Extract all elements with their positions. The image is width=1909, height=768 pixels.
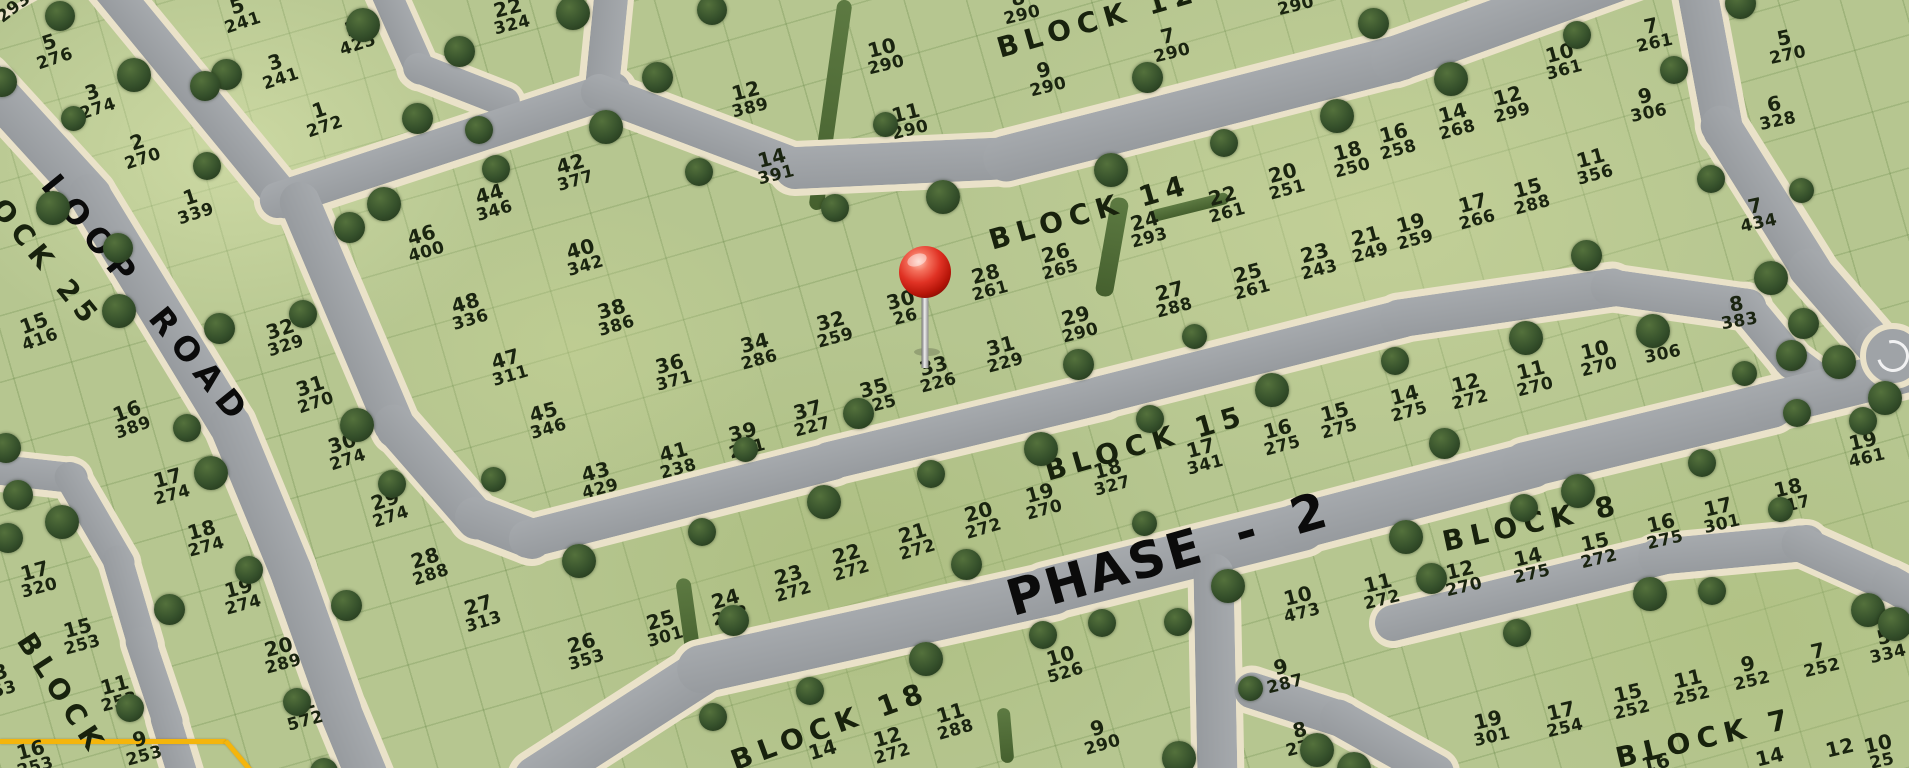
lot-label: 17274: [148, 464, 193, 508]
lot-number: 14: [1754, 744, 1786, 768]
lot-label: 41238: [654, 438, 699, 482]
lot-label: 12272: [1446, 369, 1490, 412]
lot-label: 7290: [1148, 22, 1192, 65]
tree-icon: [821, 194, 849, 222]
tree-icon: [173, 414, 201, 442]
lot-label: 12299: [1488, 82, 1533, 126]
tree-icon: [1636, 314, 1670, 348]
tree-icon: [1788, 308, 1819, 339]
location-pin[interactable]: [880, 238, 970, 368]
tree-icon: [1768, 497, 1793, 522]
lot-label: 15288: [1508, 174, 1553, 218]
tree-icon: [926, 180, 960, 214]
lot-label: 1025: [1862, 732, 1898, 768]
tree-icon: [1132, 62, 1163, 93]
lot-label: 31229: [981, 332, 1026, 376]
lot-label: 11252: [1668, 666, 1712, 709]
lot-label: 26265: [1036, 239, 1081, 283]
tree-icon: [1571, 240, 1602, 271]
tree-icon: [61, 106, 86, 131]
lot-label: 1272: [299, 96, 345, 141]
lot-label: 12: [1824, 735, 1856, 760]
plat-map: LOOP ROADPHASE - 22935276327422701339524…: [0, 0, 1909, 768]
lot-label: 12272: [867, 723, 912, 767]
tree-icon: [481, 467, 506, 492]
tree-icon: [103, 233, 133, 263]
tree-icon: [0, 523, 23, 553]
tree-icon: [1162, 741, 1196, 768]
tree-icon: [796, 677, 824, 705]
tree-icon: [807, 485, 841, 519]
lot-label: 22261: [1203, 182, 1248, 226]
tree-icon: [331, 590, 362, 621]
tree-icon: [1320, 99, 1354, 133]
lot-label: 14268: [1433, 99, 1478, 143]
tree-icon: [1164, 608, 1192, 636]
lot-label: 27313: [458, 591, 504, 635]
lot-area-value: 293: [0, 0, 34, 26]
lot-label: 9290: [1024, 56, 1068, 99]
lot-label: 15416: [14, 308, 61, 354]
lot-label: 5276: [29, 28, 75, 73]
tree-icon: [1509, 321, 1543, 355]
tree-icon: [1429, 428, 1460, 459]
tree-icon: [45, 505, 79, 539]
road-segment: [1076, 295, 1426, 418]
lot-label: 19270: [1020, 479, 1065, 523]
lot-label: 293: [0, 0, 34, 26]
lot-label: 20272: [958, 498, 1003, 542]
lot-label: 36371: [650, 350, 695, 394]
lot-label: 28288: [405, 544, 451, 589]
tree-icon: [235, 556, 263, 584]
tree-icon: [589, 110, 623, 144]
lot-label: 5270: [1764, 25, 1807, 67]
tree-icon: [1563, 21, 1591, 49]
lot-label: 14391: [752, 144, 796, 187]
lot-label: 19301: [1468, 707, 1512, 750]
lot-label: 9252: [1728, 651, 1772, 694]
tree-icon: [36, 191, 70, 225]
lot-label: 27288: [1150, 277, 1195, 321]
tree-icon: [1503, 619, 1531, 647]
tree-icon: [1210, 129, 1238, 157]
lot-label: 40342: [560, 235, 605, 279]
tree-icon: [688, 518, 716, 546]
tree-icon: [102, 294, 136, 328]
tree-icon: [194, 456, 228, 490]
tree-icon: [1688, 449, 1716, 477]
lot-label: 17254: [1541, 698, 1585, 741]
tree-icon: [1789, 178, 1814, 203]
lot-label: 22324: [488, 0, 532, 38]
lot-area-value: 25: [1866, 750, 1898, 768]
lot-label: 15252: [1608, 680, 1652, 723]
lot-label: 6328: [1754, 91, 1797, 133]
lot-area-value: 253: [0, 679, 18, 704]
tree-icon: [1132, 511, 1157, 536]
lot-area-value: 306: [1629, 102, 1669, 125]
lot-label: 14275: [1385, 381, 1430, 425]
lot-label: 8383: [1717, 291, 1760, 332]
lot-area-value: 290: [1276, 0, 1316, 18]
road-segment: [1313, 692, 1460, 768]
lot-label: 29290: [1056, 302, 1101, 346]
lot-label: 13253: [0, 660, 18, 704]
lot-label: 23243: [1295, 239, 1340, 283]
tree-icon: [340, 408, 374, 442]
lot-label: 21249: [1346, 222, 1391, 266]
tree-icon: [1088, 609, 1116, 637]
lot-label: 22272: [826, 540, 871, 584]
lot-label: 44346: [469, 180, 514, 224]
lot-label: 9290: [1077, 714, 1122, 758]
tree-icon: [1182, 324, 1207, 349]
lot-label: 17320: [15, 557, 60, 601]
pin-graphic: [880, 238, 970, 368]
lot-label: 11270: [1511, 356, 1555, 399]
tree-icon: [1358, 8, 1389, 39]
lot-label: 10290: [862, 34, 906, 77]
lot-label: 17266: [1453, 189, 1498, 233]
lot-label: 15275: [1315, 398, 1360, 442]
lot-label: 9306: [1625, 83, 1668, 125]
lot-label: 16275: [1258, 415, 1303, 459]
lot-label: 17301: [1698, 494, 1742, 537]
lot-label: 15253: [58, 614, 103, 658]
tree-icon: [1849, 407, 1877, 435]
lot-label: 20251: [1263, 159, 1308, 203]
lot-label: 48336: [445, 289, 490, 333]
tree-icon: [1238, 676, 1263, 701]
lot-label: 42377: [550, 150, 595, 194]
lot-label: 37227: [788, 396, 833, 440]
lot-label: 43429: [576, 458, 621, 502]
tree-icon: [1094, 153, 1128, 187]
tree-icon: [283, 688, 311, 716]
tree-icon: [1776, 340, 1807, 371]
roundabout-ring: [1871, 334, 1909, 378]
tree-icon: [1698, 577, 1726, 605]
tree-icon: [718, 605, 749, 636]
lot-label: 16389: [107, 396, 154, 442]
lot-label: 46400: [401, 221, 446, 265]
lot-label: 23272: [768, 561, 813, 605]
tree-icon: [444, 36, 475, 67]
lot-label: 10473: [1278, 582, 1322, 625]
lot-label: 45346: [523, 398, 568, 442]
lot-label: 11356: [1571, 144, 1616, 188]
lot-label: 28261: [966, 260, 1011, 304]
phase-boundary-line: [224, 739, 256, 768]
tree-icon: [3, 480, 33, 510]
tree-icon: [733, 437, 758, 462]
lot-label: 12389: [726, 77, 770, 120]
lot-label: 38386: [591, 295, 636, 339]
lot-label: 47311: [485, 345, 530, 389]
tree-icon: [1725, 0, 1756, 19]
lot-label: 9287: [1261, 653, 1305, 696]
tree-icon: [116, 694, 144, 722]
tree-icon: [1697, 165, 1725, 193]
tree-icon: [1255, 373, 1289, 407]
lot-area-value: 270: [1768, 44, 1808, 67]
tree-icon: [193, 152, 221, 180]
tree-icon: [699, 703, 727, 731]
tree-icon: [1389, 520, 1423, 554]
tree-icon: [289, 300, 317, 328]
tree-icon: [482, 155, 510, 183]
lot-label: 16275: [1641, 510, 1685, 553]
lot-label: 34286: [735, 329, 780, 373]
tree-icon: [117, 58, 151, 92]
tree-icon: [1660, 56, 1688, 84]
lot-label: 16258: [1374, 119, 1419, 163]
tree-icon: [334, 212, 365, 243]
lot-label: 32259: [811, 307, 856, 351]
lot-label: 18274: [182, 516, 227, 560]
lot-label: 26353: [561, 629, 606, 673]
tree-icon: [917, 460, 945, 488]
tree-icon: [190, 71, 220, 101]
tree-icon: [562, 544, 596, 578]
hedge-strip: [996, 707, 1014, 763]
lot-label: 7261: [1631, 13, 1674, 55]
lot-label: 11288: [930, 699, 975, 743]
tree-icon: [1211, 569, 1245, 603]
tree-icon: [1381, 347, 1409, 375]
tree-icon: [697, 0, 727, 25]
tree-icon: [204, 313, 235, 344]
tree-icon: [1754, 261, 1788, 295]
lot-label: 31270: [290, 372, 336, 417]
lot-label: 14: [1754, 744, 1786, 768]
lot-label: 19259: [1391, 209, 1436, 253]
tree-icon: [1434, 62, 1468, 96]
lot-label: 11272: [1358, 569, 1402, 612]
lot-label: 18250: [1328, 137, 1373, 181]
tree-icon: [1633, 577, 1667, 611]
tree-icon: [1878, 607, 1909, 641]
tree-icon: [402, 103, 433, 134]
lot-area-value: 261: [1635, 32, 1675, 55]
lot-number: 12: [1824, 735, 1856, 760]
lot-label: 14275: [1508, 544, 1552, 587]
tree-icon: [843, 398, 874, 429]
tree-icon: [1024, 432, 1058, 466]
lot-label: 25261: [1228, 259, 1273, 303]
lot-label: 21272: [892, 519, 937, 563]
tree-icon: [367, 187, 401, 221]
tree-icon: [642, 62, 673, 93]
lot-area-value: 328: [1758, 110, 1798, 133]
tree-icon: [346, 8, 380, 42]
lot-label: 10270: [1575, 336, 1619, 379]
lot-label: 5241: [217, 0, 263, 36]
lot-label: 7252: [1798, 638, 1842, 681]
lot-label: 10526: [1040, 642, 1085, 686]
lot-label: 2270: [117, 128, 163, 173]
lot-label: 3241: [255, 48, 301, 93]
lot-label: 1339: [170, 183, 216, 228]
lot-label: 15272: [1575, 529, 1619, 572]
tree-icon: [685, 158, 713, 186]
tree-icon: [909, 642, 943, 676]
lot-label: 7434: [1735, 193, 1778, 235]
tree-icon: [1300, 733, 1334, 767]
tree-icon: [1868, 381, 1902, 415]
lot-label: 290: [1276, 0, 1316, 18]
tree-icon: [45, 1, 75, 31]
tree-icon: [154, 594, 185, 625]
